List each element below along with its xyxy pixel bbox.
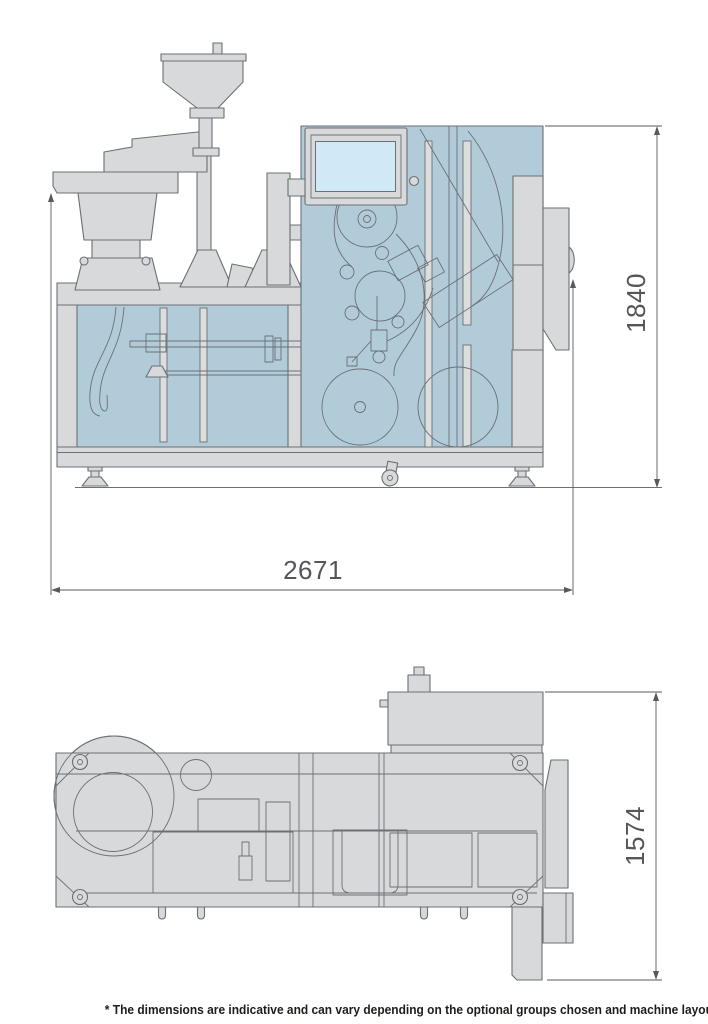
technical-drawing: 1840 2671 (0, 0, 708, 1024)
hmi-panel (288, 128, 419, 205)
height-dim-label: 1840 (621, 273, 651, 333)
plan-feet-pins (159, 907, 468, 919)
footnote: * The dimensions are indicative and can … (105, 1002, 675, 1017)
width-dim-label: 2671 (283, 555, 343, 585)
hmi-screen (316, 142, 396, 192)
door-handle (569, 247, 574, 273)
lower-cabinet (57, 283, 332, 447)
plan-body (54, 736, 543, 919)
depth-dim-label: 1574 (620, 806, 650, 866)
feed-chute (104, 131, 207, 172)
plan-cabinet (380, 667, 543, 754)
side-panels-right (512, 176, 574, 447)
side-view: 1840 2671 (48, 43, 662, 595)
plan-view: 1574 (54, 667, 662, 980)
machine-dimensions-drawing: 1840 2671 (0, 0, 708, 1024)
hopper-funnel (163, 61, 243, 108)
bowl-feeder (53, 172, 178, 290)
hmi-knob (410, 177, 419, 186)
base-frame (57, 447, 543, 467)
